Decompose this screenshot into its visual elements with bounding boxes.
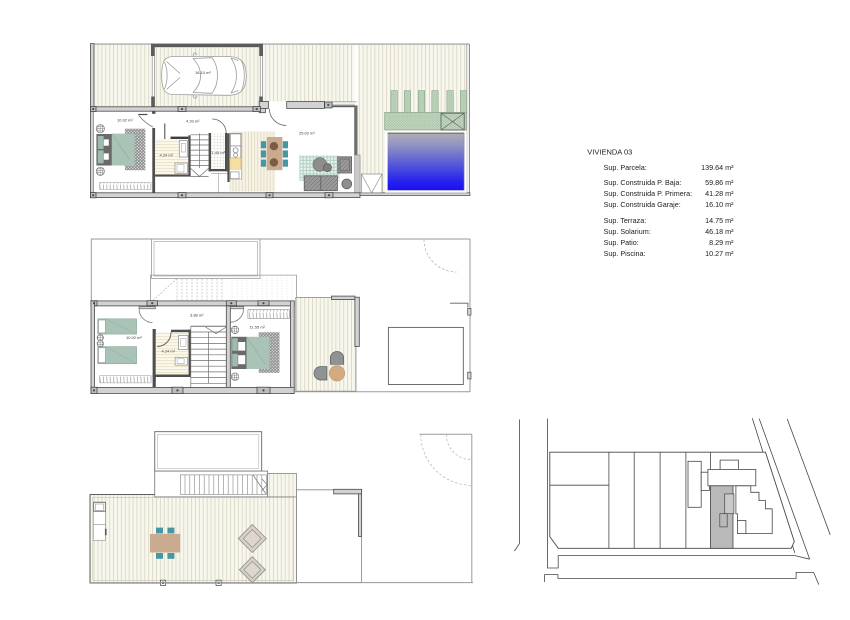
svg-text:59.86 m²: 59.86 m² — [705, 178, 734, 187]
svg-text:10.92 m²: 10.92 m² — [117, 118, 133, 123]
svg-text:3.88 m²: 3.88 m² — [190, 313, 204, 318]
svg-text:Sup. Construida P. Primera:: Sup. Construida P. Primera: — [604, 189, 693, 198]
svg-text:139.64 m²: 139.64 m² — [701, 163, 734, 172]
svg-text:Sup. Construida P. Baja:: Sup. Construida P. Baja: — [604, 178, 682, 187]
svg-text:11.55 m²: 11.55 m² — [250, 325, 266, 330]
svg-text:VIVIENDA 03: VIVIENDA 03 — [587, 148, 632, 157]
svg-text:4.24 m²: 4.24 m² — [162, 349, 176, 354]
svg-text:4.33 m²: 4.33 m² — [186, 119, 200, 124]
svg-text:Sup. Terraza:: Sup. Terraza: — [604, 216, 647, 225]
svg-text:16.10 m²: 16.10 m² — [705, 200, 734, 209]
svg-text:14.75 m²: 14.75 m² — [705, 216, 734, 225]
svg-text:1.44 m²: 1.44 m² — [212, 150, 226, 155]
svg-text:Sup. Patio:: Sup. Patio: — [604, 238, 639, 247]
svg-text:Sup. Parcela:: Sup. Parcela: — [604, 163, 647, 172]
svg-text:Sup. Construida Garaje:: Sup. Construida Garaje: — [604, 200, 681, 209]
svg-text:16.10 m²: 16.10 m² — [195, 70, 211, 75]
svg-text:10.27 m²: 10.27 m² — [705, 249, 734, 258]
svg-text:41.28 m²: 41.28 m² — [705, 189, 734, 198]
svg-text:Sup. Piscina:: Sup. Piscina: — [604, 249, 646, 258]
svg-text:8.29 m²: 8.29 m² — [709, 238, 734, 247]
svg-text:4.24 m²: 4.24 m² — [160, 153, 174, 158]
svg-text:25.02 m²: 25.02 m² — [299, 131, 315, 136]
svg-text:10.92 m²: 10.92 m² — [126, 335, 142, 340]
svg-text:46.18 m²: 46.18 m² — [705, 227, 734, 236]
svg-text:Sup. Solarium:: Sup. Solarium: — [604, 227, 651, 236]
